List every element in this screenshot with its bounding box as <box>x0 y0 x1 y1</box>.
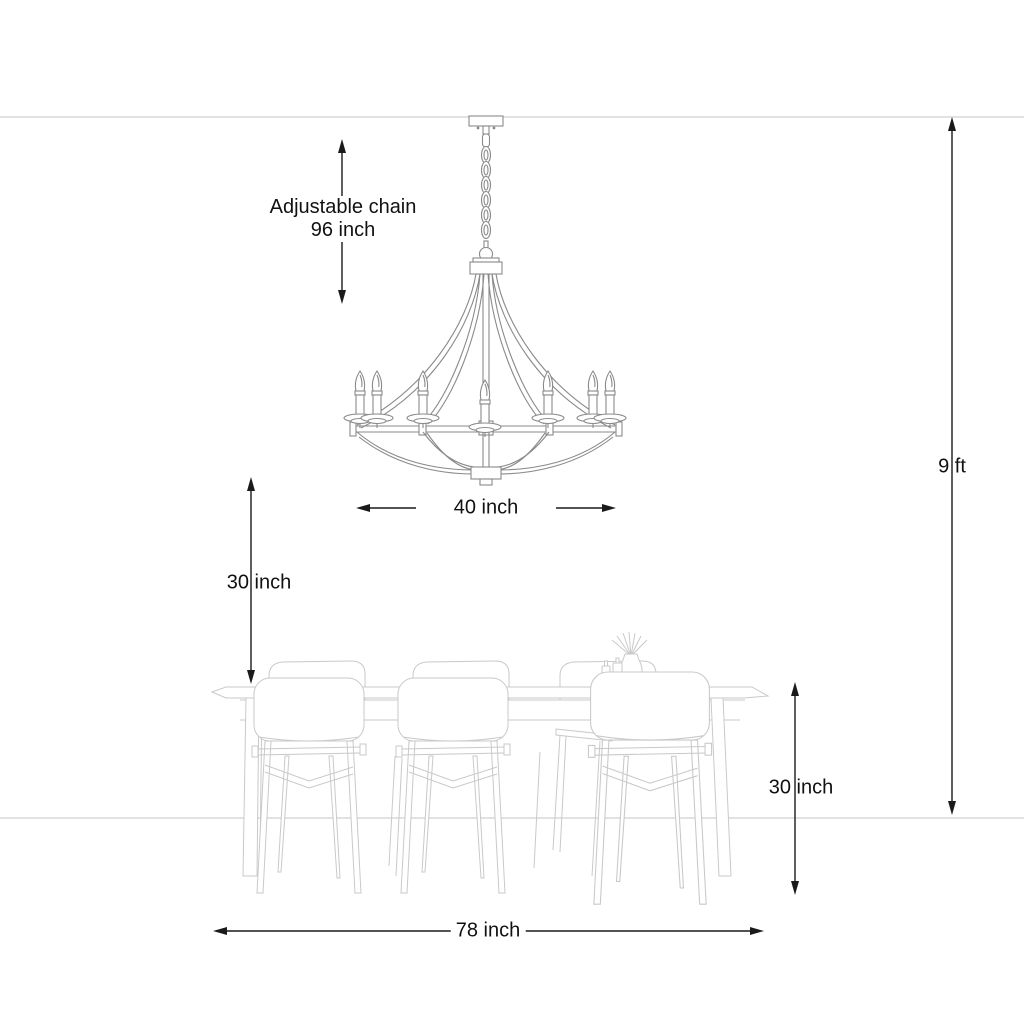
fixture-clearance-label: 30 inch <box>227 572 292 595</box>
chair <box>252 678 366 893</box>
dining-set-drawing <box>212 632 768 904</box>
ceiling-height-label: 9 ft <box>938 456 966 479</box>
room-outline <box>0 117 1024 818</box>
chair <box>396 678 510 893</box>
lower-basket <box>357 432 615 485</box>
chain-length-label-line2: 96 inch <box>311 219 376 241</box>
bottom-finial <box>471 467 501 479</box>
chandelier-cap <box>470 262 502 274</box>
chain-length-label: Adjustable chain96 inch <box>265 196 422 242</box>
diagram-canvas: Adjustable chain96 inch 40 inch 30 inch … <box>0 0 1024 1024</box>
table-height-label: 30 inch <box>769 777 834 800</box>
chain-length-label-line1: Adjustable chain <box>270 196 417 218</box>
candles <box>344 371 626 437</box>
chandelier-drawing <box>344 116 626 485</box>
ceiling-canopy <box>469 116 503 126</box>
fixture-width-label: 40 inch <box>454 497 519 520</box>
table-length-label: 78 inch <box>451 920 526 943</box>
chain <box>482 147 491 249</box>
chair <box>588 672 711 904</box>
